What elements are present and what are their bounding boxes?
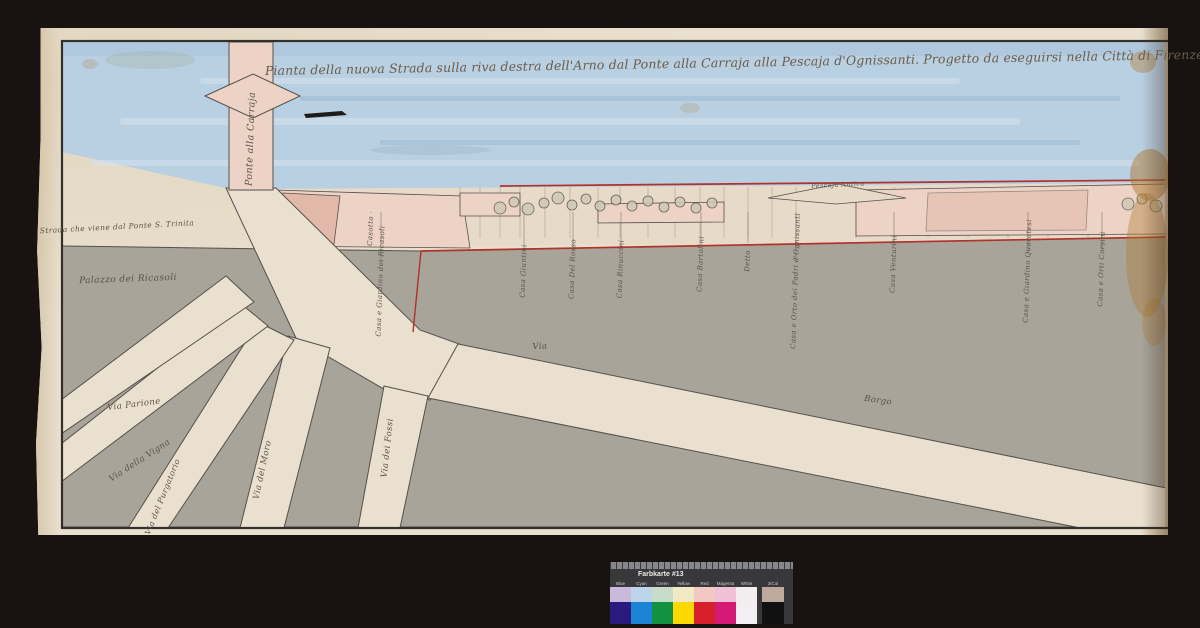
map-drawing: [0, 0, 1200, 628]
swatch-label: 3/Col: [762, 580, 784, 587]
card-title: Farbkarte #13: [610, 569, 793, 580]
card-column-red: Red: [694, 580, 715, 624]
color-calibration-card: Farbkarte #13 BlueCyanGreenYellowRedMage…: [610, 562, 793, 624]
bank-property-label: Detto: [744, 250, 752, 272]
swatch-label: Yellow: [673, 580, 694, 587]
swatch-light: [694, 587, 715, 602]
swatch-saturated: [694, 602, 715, 624]
swatch-light: [652, 587, 673, 602]
card-column-white: White: [736, 580, 757, 624]
paper-edge-shadow: [1142, 28, 1168, 535]
card-column-magenta: Magenta: [715, 580, 736, 624]
swatch-light: [610, 587, 631, 602]
swatch-light: [715, 587, 736, 602]
swatch-label: Red: [694, 580, 715, 587]
swatch-saturated: [610, 602, 631, 624]
swatch-saturated: [715, 602, 736, 624]
swatch-saturated: [673, 602, 694, 624]
swatch-saturated: [652, 602, 673, 624]
swatch-label: Green: [652, 580, 673, 587]
card-column-blue: Blue: [610, 580, 631, 624]
swatch-label: Magenta: [715, 580, 736, 587]
swatch-label: Cyan: [631, 580, 652, 587]
scan-stage: Pianta della nuova Strada sulla riva des…: [0, 0, 1200, 628]
card-column-3-col: 3/Col: [762, 580, 784, 624]
swatch-light: [762, 587, 784, 602]
label-via: Via: [532, 342, 548, 352]
card-column-cyan: Cyan: [631, 580, 652, 624]
card-ruler: [610, 562, 793, 569]
card-swatches: BlueCyanGreenYellowRedMagentaWhite3/Col: [610, 580, 793, 624]
card-column-yellow: Yellow: [673, 580, 694, 624]
swatch-light: [631, 587, 652, 602]
swatch-saturated: [736, 602, 757, 624]
swatch-light: [736, 587, 757, 602]
swatch-saturated: [762, 602, 784, 624]
card-column-green: Green: [652, 580, 673, 624]
swatch-light: [673, 587, 694, 602]
swatch-label: White: [736, 580, 757, 587]
swatch-saturated: [631, 602, 652, 624]
bank-property-label: Casotto: [367, 216, 375, 246]
swatch-label: Blue: [610, 580, 631, 587]
